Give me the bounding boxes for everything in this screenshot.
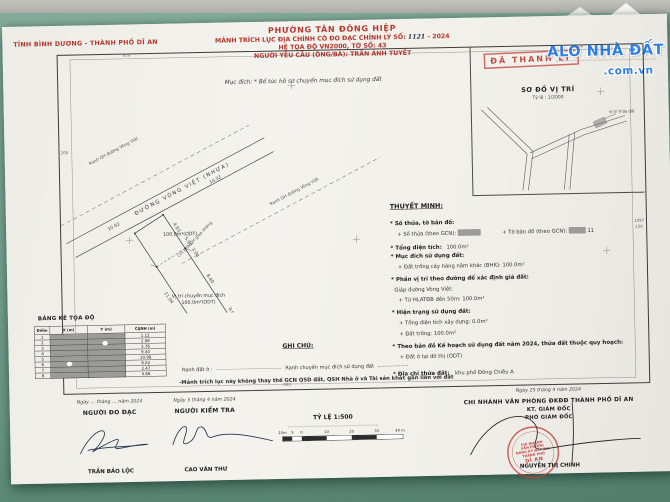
cell-y-redacted xyxy=(88,371,126,377)
notes-title: GHI CHÚ: xyxy=(282,342,313,350)
surveyor-name: TRẦN BẢO LỘC xyxy=(61,467,161,476)
qh-boundary-label-right: Ranh QH đường Vòng Việt xyxy=(268,175,320,207)
director-signature xyxy=(454,392,650,471)
handwritten-number: 1121 xyxy=(408,33,426,41)
grid-cross-icon xyxy=(288,82,296,90)
legend-residential-line-icon xyxy=(216,368,281,370)
grid-label-right-a: 1097 xyxy=(634,218,644,223)
scale-caption-blur xyxy=(288,425,378,428)
scale-tick: 0 xyxy=(300,430,302,435)
surveyor-date: Ngày … tháng … năm 2024 xyxy=(59,398,159,406)
dim-10-02: 10.02 xyxy=(107,221,121,232)
graphic-scale-bar xyxy=(282,434,403,441)
parcel-drawing: ĐƯỜNG VÒNG VIỆT (NHỰA) Ranh QH đường Vòn… xyxy=(59,119,388,315)
document-paper: TỈNH BÌNH DƯƠNG - THÀNH PHỐ DĨ AN PHƯỜNG… xyxy=(2,14,670,485)
checker-signature xyxy=(160,410,276,462)
parcel2-label: Vị trí chuyển mục đích xyxy=(172,292,225,300)
redaction-box xyxy=(569,227,586,234)
map-title-suffix: - 2024 xyxy=(427,32,449,40)
dim-3-00: 3.00 xyxy=(190,247,201,259)
photo-glare-spot xyxy=(102,341,108,346)
cell-x-redacted xyxy=(51,372,89,378)
coordinate-table: Điểm X (m) Y (m) CẠNH (m) 11.12 22.06 33… xyxy=(34,324,167,379)
qh-boundary-label-left: Ranh QH đường Vòng Việt xyxy=(87,135,139,167)
parcel2-area-label: 100.0m²(ODT) xyxy=(181,299,215,306)
tm-sheet-number-label: + Tờ bản đồ (theo GCN): xyxy=(502,228,567,235)
sketch-parcel-label: vị trí thửa đất xyxy=(609,109,635,114)
scale-tick: 30 xyxy=(374,429,379,434)
legend-conversion-line-icon xyxy=(378,365,408,366)
map-scale-label: TỶ LỆ 1:500 xyxy=(283,412,383,421)
checker-date: Ngày 3 tháng 4 năm 2024 xyxy=(149,396,259,404)
surveyor-signature xyxy=(65,416,161,467)
cell-canh: 4.66 xyxy=(126,371,167,377)
scale-tick: 20 xyxy=(349,429,354,434)
legend-residential-label: Ranh đất ở : xyxy=(182,367,213,373)
parcel1-area-label: 100.0m²(ODT) xyxy=(163,231,197,238)
coordinate-table-title: BẢNG KÊ TỌA ĐỘ xyxy=(38,314,95,322)
grid-label-top-right: 100 xyxy=(575,44,583,49)
redaction-box xyxy=(458,229,481,236)
scale-tick: 10 xyxy=(324,430,329,435)
scale-tick: 5 xyxy=(291,430,293,435)
tm-total-area-value: 100.0m² xyxy=(444,244,468,250)
tm-total-area-label: * Tổng diện tích: xyxy=(390,244,441,252)
province-line: TỈNH BÌNH DƯƠNG - THÀNH PHỐ DĨ AN xyxy=(13,38,158,48)
road-name-label: ĐƯỜNG VÒNG VIỆT (NHỰA) xyxy=(133,160,231,217)
cell-diem: 8 xyxy=(35,373,51,379)
photo-of-document: TỈNH BÌNH DƯƠNG - THÀNH PHỐ DĨ AN PHƯỜNG… xyxy=(0,0,670,502)
checker-name: CAO VĂN THƯ xyxy=(151,465,261,474)
tm-parcel-number-label: + Số thửa (theo GCN): xyxy=(397,230,456,237)
grid-label-top-left: 959 xyxy=(123,53,131,58)
photo-background: TỈNH BÌNH DƯƠNG - THÀNH PHỐ DĨ AN PHƯỜNG… xyxy=(0,0,670,502)
scale-tick: 40 m xyxy=(395,428,405,433)
photo-glare-spot xyxy=(67,362,73,367)
scale-tick: 10m xyxy=(278,430,287,435)
dim-8-40: 8.40 xyxy=(205,273,216,285)
location-sketch-map: vị trí thửa đất xyxy=(474,104,641,193)
tm-sheet-number-value: 11 xyxy=(587,227,594,233)
